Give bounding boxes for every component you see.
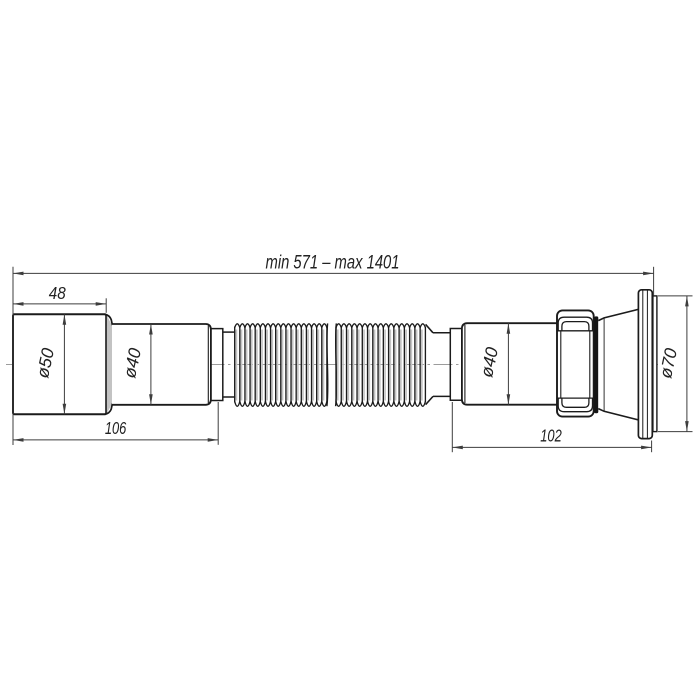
svg-text:48: 48: [49, 283, 66, 303]
svg-text:106: 106: [105, 418, 127, 438]
svg-text:102: 102: [540, 426, 562, 446]
svg-text:min 571 – max 1401: min 571 – max 1401: [266, 251, 400, 273]
